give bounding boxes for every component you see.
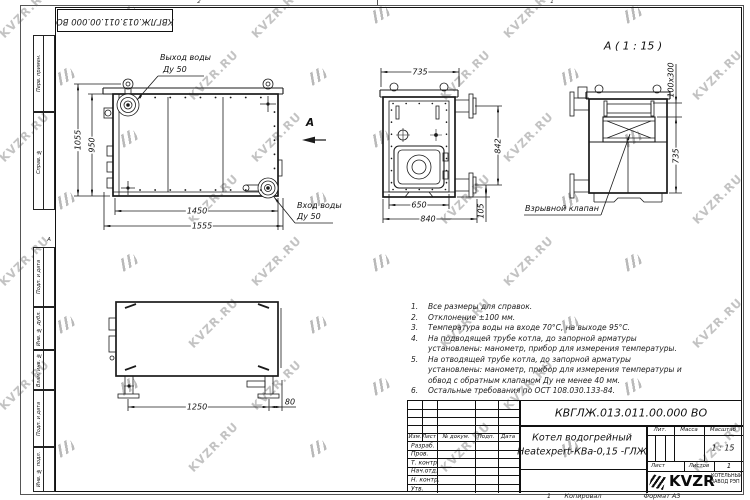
col-podp: Подп. <box>478 434 495 440</box>
company-name: КОТЕЛЬНЫЙ ЗАВОД РЭП <box>711 474 742 486</box>
scale-value: 1 : 15 <box>711 444 734 453</box>
sheet-label: Лист <box>651 463 665 469</box>
zone-marker-top-2: 2 <box>197 0 201 5</box>
document-designation: КВГЛЖ.013.011.00.000 ВО <box>555 407 707 420</box>
col-data: Дата <box>501 434 515 440</box>
col-list: Лист <box>422 434 436 440</box>
kvzr-emblem-icon <box>649 474 666 490</box>
kvzr-brand: KVZR <box>669 472 715 490</box>
margin-box-vzam-inv: Взам. инв. № <box>33 350 55 390</box>
margin-box-podp-data-2: Подп. и дата <box>33 390 55 447</box>
zone-marker-top-1: 1 <box>550 0 554 5</box>
margin-label: Справ. № <box>34 113 44 209</box>
footer-copied: Копировал <box>564 492 601 500</box>
title-block: Изм. Лист № докум. Подп. Дата Разраб. Пр… <box>407 400 742 492</box>
margin-label: Подп. и дата <box>34 248 44 306</box>
sig-razrab: Разраб. <box>411 442 435 449</box>
product-name-line2: Heatexpert-КВа-0,15 -ГЛЖ <box>517 447 647 458</box>
mass-label: Масса <box>680 427 698 433</box>
sig-utv: Утв. <box>411 485 424 492</box>
scale-label: Масштаб <box>710 427 736 433</box>
margin-box-podp-data-1: Подп. и дата <box>33 247 55 307</box>
company-line2: ЗАВОД РЭП <box>711 480 742 486</box>
drawing-sheet: KVZR.RUKVZR.RUKVZR.RUKVZR.RUKVZR.RUKVZR.… <box>0 0 750 500</box>
margin-box-inv-dubl: Инв. № дубл. <box>33 307 55 350</box>
margin-label: Взам. инв. № <box>34 351 44 389</box>
product-name-line1: Котел водогрейный <box>532 433 632 444</box>
zone-marker-bottom: 1 <box>547 492 551 500</box>
zone-marker-left-a: А <box>47 237 51 243</box>
zone-tick <box>377 0 378 5</box>
margin-label: Инв. № подл. <box>34 448 44 491</box>
margin-label: Инв. № дубл. <box>34 308 44 349</box>
col-doc: № докум. <box>442 434 469 440</box>
margin-label: Перв. примен. <box>34 36 44 111</box>
col-izm: Изм. <box>409 434 422 440</box>
margin-box-inv-podl: Инв. № подл. <box>33 447 55 492</box>
margin-label: Подп. и дата <box>34 391 44 446</box>
sig-tkontr: Т. контр. <box>411 459 439 466</box>
sig-nkontr: Н. контр. <box>411 476 440 483</box>
footer-format: Формат А3 <box>643 492 680 500</box>
sig-nachotd: Нач.отд. <box>411 468 438 475</box>
sheets-value: 1 <box>727 462 731 470</box>
sheets-label: Листов <box>689 463 710 469</box>
lit-label: Лит. <box>654 427 667 433</box>
top-designation-text: КВГЛЖ.013.011.00.000 ВО <box>56 16 174 26</box>
margin-box-sprav-n: Справ. № <box>33 112 55 210</box>
margin-box-perv-primen: Перв. примен. <box>33 35 55 112</box>
sig-prov: Пров. <box>411 451 428 458</box>
top-designation-stamp: КВГЛЖ.013.011.00.000 ВО <box>57 9 173 32</box>
